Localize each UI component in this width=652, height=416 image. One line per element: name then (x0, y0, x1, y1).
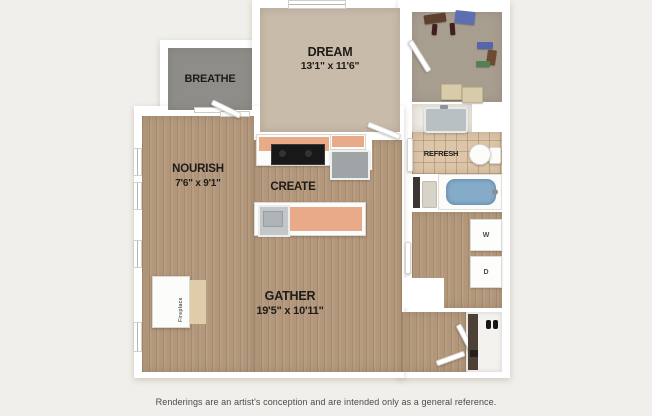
nourish-window-upper (133, 148, 142, 176)
floor-kitchen-gather (254, 140, 402, 372)
washer-label: W (483, 232, 490, 239)
gather-window-upper (133, 240, 142, 268)
dream-dims: 13'1" x 11'6" (260, 60, 400, 74)
kitchen-sink-basin (263, 211, 283, 227)
dream-name: DREAM (260, 44, 400, 60)
laundry-door (405, 242, 411, 274)
create-name: CREATE (238, 180, 348, 195)
closet-basket-left (441, 84, 462, 100)
closet-boot-left (432, 24, 438, 35)
nourish-window-lower (133, 182, 142, 210)
toilet-bowl (469, 144, 491, 165)
entry-closet-item (470, 350, 478, 357)
closet-boot-right (450, 23, 456, 35)
bathtub-water (446, 179, 496, 205)
gather-name: GATHER (178, 288, 402, 304)
room-label-breathe: BREATHE (168, 72, 252, 86)
entry-shoe-left (486, 320, 491, 329)
breathe-name: BREATHE (168, 72, 252, 86)
entry-shoe-right (493, 320, 498, 329)
refrigerator (330, 150, 370, 180)
room-label-gather: GATHER 19'5" x 10'11" (178, 288, 402, 319)
dryer: D (470, 256, 502, 288)
room-label-dream: DREAM 13'1" x 11'6" (260, 44, 400, 74)
floor-entry (402, 312, 466, 372)
closet-tray-green (476, 61, 490, 67)
vanity-sink (424, 107, 468, 133)
floor-nourish (142, 116, 254, 372)
washer: W (470, 219, 502, 251)
wall-jog-laundry (402, 278, 444, 308)
floor-plan: W D Fireplace BREATHE DREAM 13'1" x 11'6… (0, 0, 652, 416)
stove-burner-left (279, 150, 286, 157)
vanity-faucet (440, 105, 448, 109)
gather-dims: 19'5" x 10'11" (178, 304, 402, 318)
disclaimer-text: Renderings are an artist's conception an… (0, 397, 652, 407)
closet-box-blue (454, 10, 475, 25)
stove-burner-right (305, 150, 312, 157)
room-label-create: CREATE (238, 180, 348, 195)
bathtub-faucet (492, 189, 498, 195)
fridge-counter-top (332, 136, 364, 147)
bedroom-window (288, 0, 346, 9)
gather-window-lower (133, 322, 142, 352)
room-label-refresh: REFRESH (413, 149, 469, 159)
dryer-label: D (483, 269, 488, 276)
closet-basket-right (462, 87, 483, 103)
nourish-name: NOURISH (142, 162, 254, 177)
entry-closet-shelving (468, 314, 478, 370)
page: { "plan": { "rooms": { "breathe": {"labe… (0, 0, 652, 416)
closet-tray-blue (477, 42, 493, 49)
island-counter-top (288, 207, 362, 231)
linen-shelf (413, 177, 420, 208)
bath-mat (422, 181, 437, 208)
refresh-name: REFRESH (413, 149, 469, 159)
